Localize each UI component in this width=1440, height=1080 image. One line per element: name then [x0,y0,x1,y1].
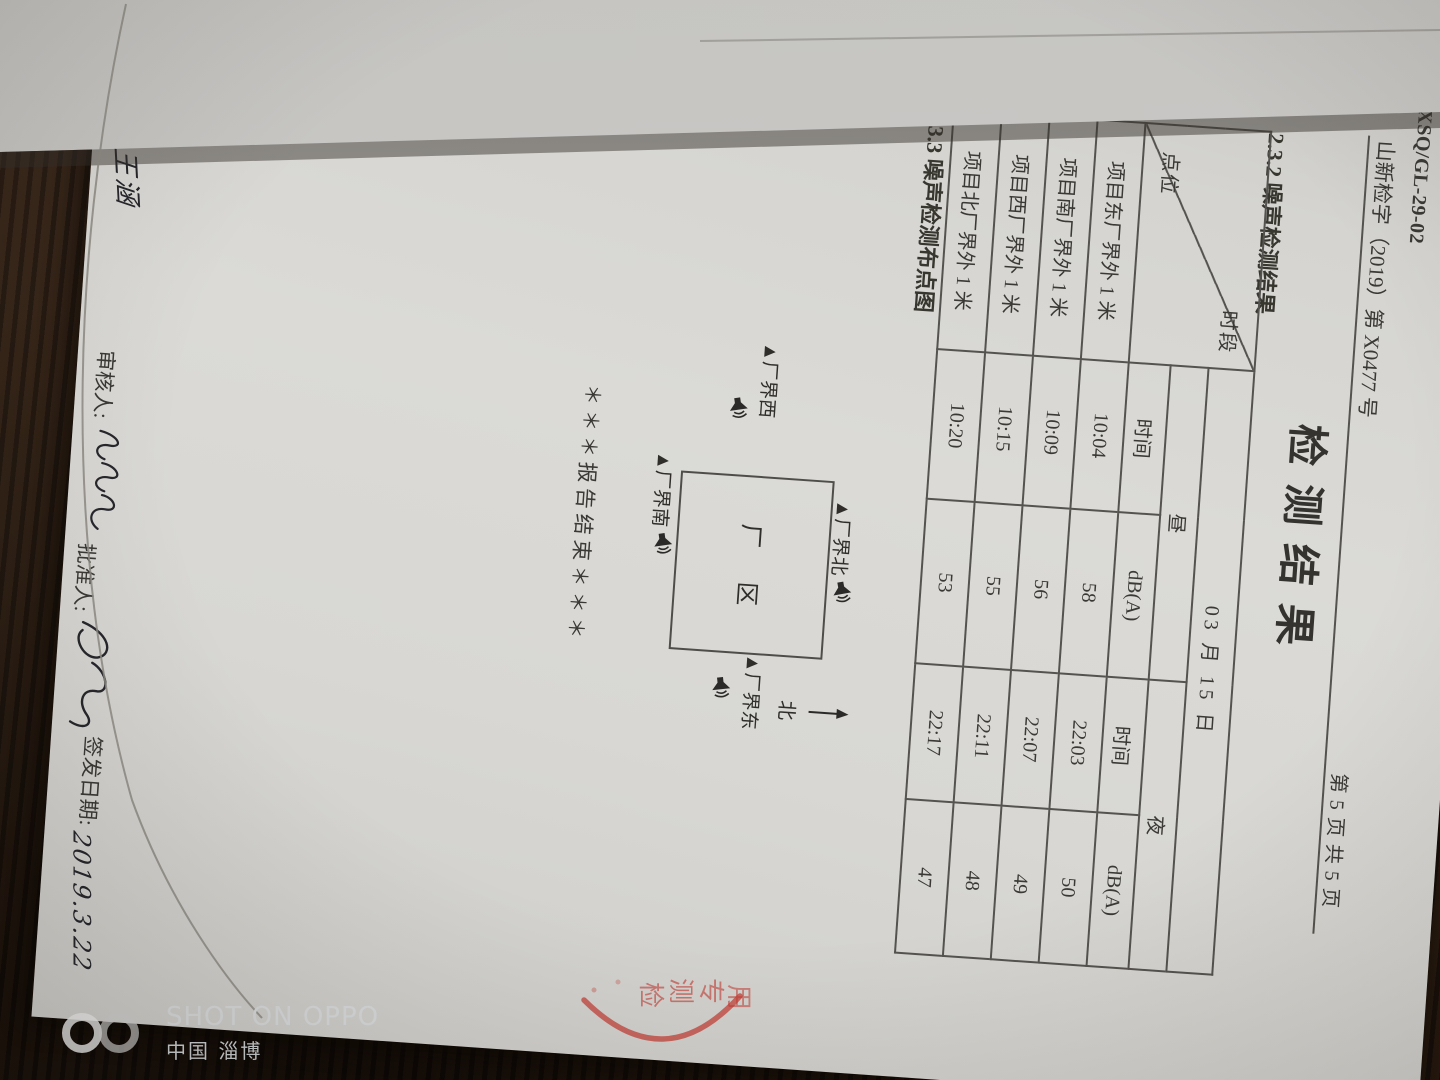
watermark-text: SHOT ON OPPO 中国 淄博 [166,1002,379,1064]
reviewer-block: 审核人: [79,349,136,536]
south-boundary-label: ▲厂界南 [648,450,680,528]
document-code: XSQ/GL-29-02 [1404,109,1436,245]
monitor-point-north: ▲厂界北 [824,499,859,605]
night-time-cell: 22:03 [1049,673,1106,812]
monitor-point-south: ▲厂界南 [645,450,680,556]
photo-of-document: XSQ/GL-29-02 山新检字（2019）第 X0477 号 第 5 页 共… [0,0,1440,1080]
stamp-char: 专 [696,978,725,1004]
factory-area-box: 厂区 [669,470,835,659]
monitor-point-east: ▲厂界东 [736,653,768,731]
east-boundary-label: ▲厂界东 [736,653,768,731]
factory-area-label: 厂区 [729,489,774,641]
corner-label-point: 点位 [1155,151,1187,197]
approver-block: 批准人: [59,542,122,740]
watermark-line2: 中国 淄博 [166,1035,379,1064]
preparer-label: 编制人: [112,72,147,143]
issue-date-block: 签发日期: 2019.3.22 [63,735,109,973]
north-boundary-label: ▲厂界北 [827,499,859,577]
table-corner-cell: 时段 点位 [1129,123,1271,371]
noise-results-table: 时段 点位 03 月 15 日 昼 夜 时间 dB(A) 时间 dB(A) 项目… [894,109,1272,976]
report-page: XSQ/GL-29-02 山新检字（2019）第 X0477 号 第 5 页 共… [31,0,1440,1080]
stamp-char: 用 [724,984,753,1010]
monitor-point-west: ▲厂界西 [754,342,786,420]
camera-watermark: SHOT ON OPPO 中国 淄博 [58,1002,379,1064]
speaker-icon [645,530,675,556]
reviewer-signature-scribble [79,424,131,537]
stamp-char: 检 [636,982,665,1008]
night-time-cell: 22:07 [1002,670,1059,809]
night-time-cell: 22:11 [954,667,1011,806]
north-arrow: 北 [772,690,850,735]
red-seal-stamp: 检 测 专 用 [542,938,777,1078]
oppo-logo-icon [58,1010,150,1056]
west-boundary-label: ▲厂界西 [754,342,786,420]
issue-date-value: 2019.3.22 [68,829,96,974]
speaker-icon [824,579,854,605]
approver-signature-scribble [59,617,117,740]
watermark-line1: SHOT ON OPPO [166,1002,379,1032]
reviewer-label: 审核人: [87,349,122,420]
preparer-block: 编制人: 王涵 [107,72,155,209]
report-content: XSQ/GL-29-02 山新检字（2019）第 X0477 号 第 5 页 共… [36,0,1440,1054]
corner-label-period: 时段 [1214,309,1246,355]
signature-row: 编制人: 王涵 审核人: 批准人: 签发日期: 20 [93,75,156,973]
stamp-char: 测 [666,978,695,1004]
issue-date-label: 签发日期: [73,735,109,827]
night-time-cell: 22:17 [906,663,963,802]
north-arrow-label: 北 [772,690,804,732]
preparer-signature: 王涵 [107,146,149,209]
north-arrow-icon [806,702,849,725]
approver-label: 批准人: [68,542,103,613]
speaker-icon [720,394,751,422]
speaker-icon [703,674,733,701]
